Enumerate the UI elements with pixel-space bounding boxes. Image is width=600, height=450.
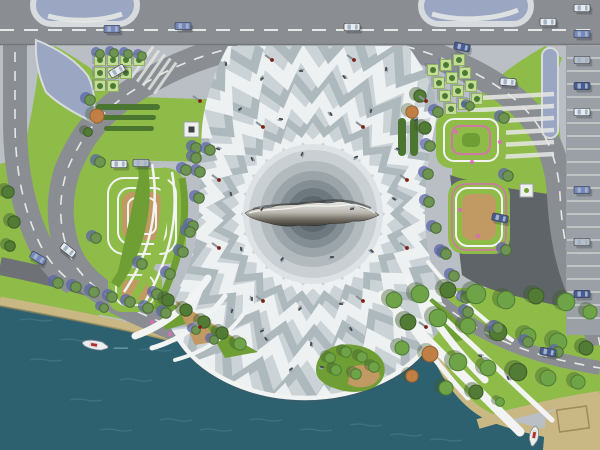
car-rear-window (144, 160, 147, 165)
pole-head (198, 99, 202, 103)
grid-tree (92, 66, 106, 79)
grid-tree-canopy (110, 83, 116, 89)
tree-canopy (89, 287, 100, 298)
tree-canopy (496, 398, 505, 407)
tree-canopy (181, 165, 192, 176)
car-body (500, 78, 516, 86)
pole-head (217, 178, 221, 182)
tree-canopy (161, 308, 172, 319)
tree-canopy (439, 381, 453, 395)
tree-canopy (110, 49, 119, 58)
car-windshield (578, 83, 581, 88)
hedge (104, 126, 154, 131)
grid-tree-canopy (449, 75, 455, 81)
pole-head (405, 246, 409, 250)
pole-head (361, 299, 365, 303)
pole-head (198, 325, 202, 329)
tree-canopy (331, 365, 342, 376)
grid-tree-canopy (443, 62, 449, 68)
grid-tree-canopy (442, 93, 448, 99)
car-body (344, 23, 360, 30)
tree-canopy (369, 362, 380, 373)
tree-canopy (528, 288, 544, 304)
car-windshield (578, 109, 581, 114)
hedge (96, 104, 160, 110)
tree-canopy (406, 370, 418, 382)
tree-canopy (195, 167, 206, 178)
car (574, 4, 592, 14)
grid-tree-canopy (455, 88, 461, 94)
tree-canopy (509, 363, 527, 381)
tree-canopy (466, 284, 485, 303)
grid-tree-canopy (97, 83, 103, 89)
car (104, 25, 122, 35)
garden-planting (462, 194, 496, 240)
tree-canopy (137, 259, 148, 270)
tree-canopy (138, 52, 147, 61)
tree-canopy (107, 292, 118, 303)
pavilion-east-core (524, 188, 529, 193)
tree-canopy (523, 337, 534, 348)
grid-tree-canopy (468, 83, 474, 89)
tree-canopy (425, 141, 436, 152)
pole-head (270, 58, 274, 62)
pole-head (424, 325, 428, 329)
car (540, 18, 558, 28)
car-windshield (578, 31, 581, 36)
flower-cluster (168, 332, 172, 336)
tree-canopy (501, 245, 512, 256)
pole-head (261, 125, 265, 129)
tree-canopy (90, 109, 104, 123)
tree-canopy (497, 291, 515, 309)
car (574, 82, 592, 92)
tree-canopy (460, 318, 476, 334)
car-windshield (108, 26, 111, 31)
car (574, 186, 592, 196)
pedestrian-figure (299, 70, 304, 72)
tree-canopy (124, 50, 133, 59)
grid-tree (463, 79, 477, 92)
grid-tree-canopy (436, 80, 442, 86)
car-rear-window (585, 291, 588, 296)
pole-head (424, 99, 428, 103)
tree-canopy (424, 197, 435, 208)
grid-tree (457, 66, 471, 79)
tree-canopy (469, 385, 483, 399)
car-windshield (544, 19, 547, 24)
pedestrian-shadow (224, 61, 226, 66)
tree-canopy (557, 293, 575, 311)
tree-canopy (440, 282, 456, 298)
tree-canopy (8, 216, 20, 228)
tree-canopy (386, 292, 402, 308)
car-rear-window (511, 80, 514, 85)
car-rear-window (585, 5, 588, 10)
car (111, 160, 129, 170)
car-windshield (179, 23, 182, 28)
pole-head (352, 58, 356, 62)
tree-canopy (503, 171, 514, 182)
car-rear-window (115, 26, 118, 31)
grid-tree (431, 76, 445, 89)
tree-canopy (234, 338, 246, 350)
pole-head (261, 299, 265, 303)
tree-canopy (2, 186, 14, 198)
tree-canopy (463, 307, 474, 318)
tree-canopy (100, 304, 109, 313)
grid-tree-canopy (462, 70, 468, 76)
grid-tree (105, 79, 119, 92)
flower-cluster (498, 140, 502, 144)
tree-canopy (400, 314, 416, 330)
pedestrian-figure (225, 62, 227, 66)
car (574, 290, 592, 300)
tree-canopy (419, 122, 431, 134)
tree-canopy (422, 346, 438, 362)
tree-canopy (433, 107, 444, 118)
tree-canopy (571, 375, 585, 389)
car-rear-window (355, 24, 358, 29)
tree-canopy (449, 271, 460, 282)
grid-tree-canopy (474, 96, 480, 102)
tree-canopy (53, 278, 64, 289)
car-windshield (578, 57, 581, 62)
car (574, 238, 592, 248)
pole-head (361, 125, 365, 129)
tree-canopy (480, 360, 496, 376)
tree-canopy (180, 304, 192, 316)
tree-canopy (96, 50, 105, 59)
parking-strip (566, 0, 600, 335)
grid-tree (92, 79, 106, 92)
tree-canopy (395, 341, 409, 355)
tree-canopy (125, 297, 136, 308)
tree-canopy (357, 352, 368, 363)
tree-canopy (351, 369, 362, 380)
flower-cluster (470, 160, 474, 164)
garden-core (462, 133, 480, 147)
flower-cluster (458, 208, 462, 212)
tree-canopy (441, 249, 452, 260)
flower-cluster (454, 130, 458, 134)
car-rear-window (585, 239, 588, 244)
car-rear-window (585, 83, 588, 88)
car-windshield (115, 161, 118, 166)
grid-tree-canopy (97, 70, 103, 76)
pedestrian-figure (330, 256, 334, 258)
car-windshield (578, 5, 581, 10)
pavilion-west-core (189, 127, 195, 133)
flower-cluster (150, 320, 154, 324)
tree-canopy (449, 353, 467, 371)
grid-tree-canopy (456, 57, 462, 63)
car (574, 30, 592, 40)
tree-canopy (429, 309, 447, 327)
car (133, 159, 151, 169)
pedestrian-figure (251, 297, 253, 301)
tree-canopy (493, 323, 504, 334)
tree-canopy (583, 305, 597, 319)
car (175, 22, 193, 32)
tree-canopy (178, 247, 189, 258)
grid-tree (444, 71, 458, 84)
car-rear-window (551, 19, 554, 24)
pole-head (217, 246, 221, 250)
car (344, 23, 362, 33)
tree-canopy (162, 294, 174, 306)
car-rear-window (585, 109, 588, 114)
car-windshield (578, 239, 581, 244)
car-rear-window (186, 23, 189, 28)
tree-canopy (406, 106, 418, 118)
car-rear-window (585, 187, 588, 192)
tree-canopy (499, 113, 510, 124)
car-windshield (503, 79, 507, 84)
car (574, 108, 592, 118)
grid-tree (451, 53, 465, 66)
tree-canopy (341, 347, 352, 358)
tree-canopy (71, 282, 82, 293)
grid-tree (443, 102, 457, 115)
grid-tree-canopy (448, 106, 454, 112)
grid-tree (438, 58, 452, 71)
tree-canopy (84, 128, 93, 137)
grid-tree (425, 63, 439, 76)
master-plan-canvas (0, 0, 600, 450)
car-windshield (137, 160, 140, 165)
tree-canopy (85, 95, 96, 106)
car-windshield (578, 187, 581, 192)
tree-canopy (423, 169, 434, 180)
tree-canopy (5, 241, 16, 252)
tree-canopy (466, 102, 475, 111)
tree-canopy (210, 336, 219, 345)
tree-canopy (411, 285, 429, 303)
grid-tree (450, 84, 464, 97)
car-rear-window (122, 161, 125, 166)
hedge (100, 115, 156, 120)
tree-canopy (579, 341, 593, 355)
tree-canopy (540, 370, 556, 386)
flower-cluster (476, 234, 480, 238)
tree-canopy (143, 303, 154, 314)
tree-canopy (194, 193, 205, 204)
tree-canopy (95, 157, 106, 168)
tree-canopy (91, 233, 102, 244)
tree-canopy (325, 353, 336, 364)
site-plan-rendering (0, 0, 600, 450)
tree-canopy (431, 223, 442, 234)
tree-canopy (165, 269, 176, 280)
tree-canopy (191, 153, 202, 164)
car-rear-window (585, 57, 588, 62)
car-windshield (578, 291, 581, 296)
car-body (175, 22, 191, 29)
grid-tree-canopy (430, 67, 436, 73)
car (500, 78, 519, 89)
pole-head (405, 178, 409, 182)
car (574, 56, 592, 66)
car-windshield (348, 24, 351, 29)
grid-tree (437, 89, 451, 102)
car-body (133, 159, 149, 166)
tree-canopy (205, 145, 216, 156)
grid-tree-canopy (110, 57, 116, 63)
car-rear-window (585, 31, 588, 36)
tree-canopy (185, 227, 196, 238)
